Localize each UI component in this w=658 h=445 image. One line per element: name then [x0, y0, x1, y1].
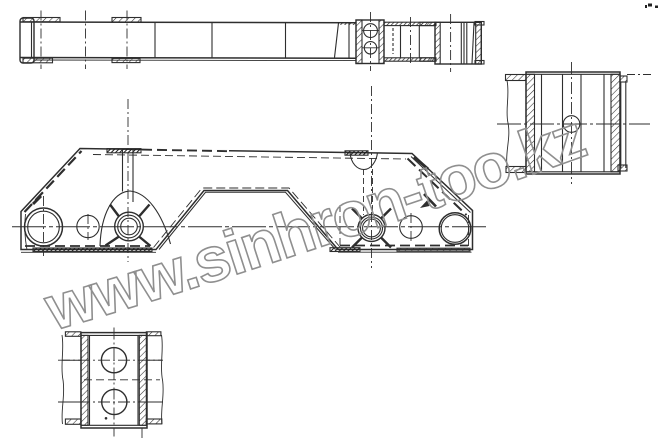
svg-text:www.sinhron-too.kz: www.sinhron-too.kz: [37, 102, 593, 345]
